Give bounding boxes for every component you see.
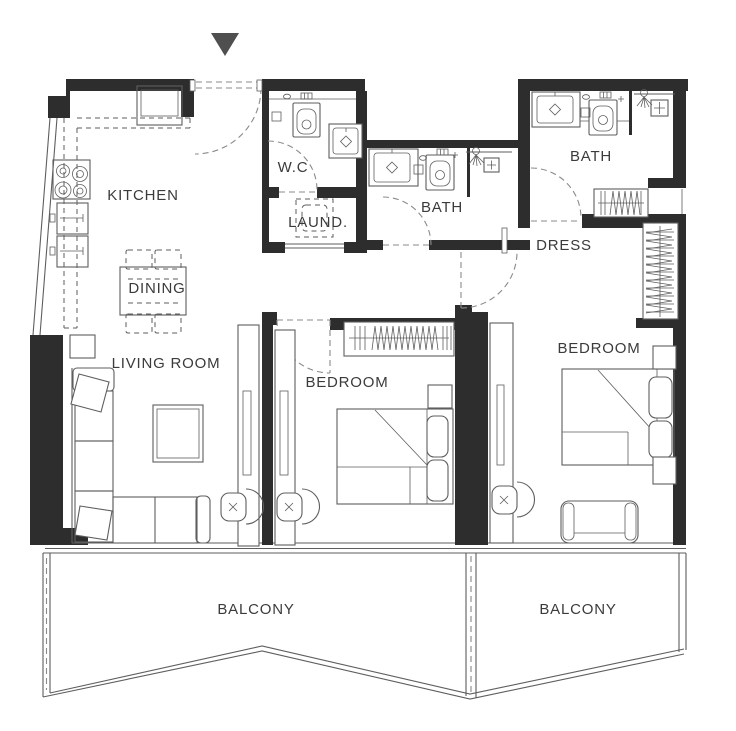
pillow-icon bbox=[649, 377, 672, 418]
bath1-fixtures bbox=[369, 148, 512, 191]
wall-accessory-icon bbox=[272, 112, 281, 121]
fridge-icon bbox=[137, 86, 182, 125]
room-label-living-room: LIVING ROOM bbox=[112, 355, 221, 372]
washbasin-icon bbox=[532, 92, 580, 127]
bed-icon bbox=[337, 409, 453, 504]
sofa-icon bbox=[71, 368, 210, 543]
pillow-icon bbox=[427, 460, 448, 501]
room-label-dining: DINING bbox=[128, 280, 185, 297]
room-labels: KITCHEN W.C LAUND. BATH BATH DRESS DININ… bbox=[107, 148, 640, 618]
room-label-bath-2: BATH bbox=[570, 148, 612, 165]
pillow-icon bbox=[649, 421, 672, 458]
window-wall bbox=[43, 543, 686, 553]
soap-dish-icon bbox=[583, 95, 590, 100]
desk-chair-icon bbox=[492, 482, 535, 517]
nightstand-icon bbox=[653, 346, 676, 369]
door-jamb bbox=[257, 80, 262, 91]
room-label-wc: W.C bbox=[278, 159, 309, 176]
soap-dish-icon bbox=[284, 94, 291, 99]
nightstand-icon bbox=[428, 385, 452, 408]
nightstand-icon bbox=[653, 457, 676, 484]
toilet-icon bbox=[293, 103, 320, 137]
door-jamb bbox=[502, 228, 507, 253]
toilet-icon bbox=[589, 100, 617, 135]
pillow-icon bbox=[427, 416, 448, 457]
shelf-icon bbox=[437, 149, 448, 155]
room-label-balcony-1: BALCONY bbox=[217, 601, 294, 618]
room-label-laundry: LAUND. bbox=[288, 214, 348, 231]
bed-icon bbox=[562, 369, 674, 465]
shelf-icon bbox=[600, 92, 611, 98]
laundry-sliding-door bbox=[285, 244, 344, 248]
dress-door-swing-arc bbox=[461, 252, 517, 308]
room-label-bath-1: BATH bbox=[421, 199, 463, 216]
desk-chair-icon bbox=[277, 489, 320, 524]
stove-icon bbox=[53, 160, 90, 199]
toilet-icon bbox=[426, 155, 454, 190]
pillow-icon bbox=[71, 374, 109, 412]
side-table-icon bbox=[70, 335, 95, 358]
pillow-icon bbox=[75, 506, 112, 540]
closet-hangers-icon bbox=[594, 189, 648, 217]
balcony-railing bbox=[43, 553, 686, 699]
door-jamb bbox=[190, 80, 195, 91]
shower-icon bbox=[634, 90, 675, 117]
bench-sofa-icon bbox=[561, 501, 638, 543]
wc-fixtures bbox=[269, 93, 362, 158]
washbasin-icon bbox=[329, 124, 362, 158]
floor-plan-drawing: KITCHEN W.C LAUND. BATH BATH DRESS DININ… bbox=[0, 0, 736, 731]
room-label-balcony-2: BALCONY bbox=[539, 601, 616, 618]
room-label-dress: DRESS bbox=[536, 237, 592, 254]
shower-icon bbox=[466, 148, 512, 173]
entrance-door-swing-arc bbox=[195, 88, 261, 154]
shelf-icon bbox=[301, 93, 312, 99]
closet-hangers-icon bbox=[344, 322, 454, 356]
bath2-fixtures bbox=[532, 90, 675, 136]
bath2-door-swing-arc bbox=[531, 168, 581, 221]
kitchen-sink-icon bbox=[50, 203, 88, 267]
balcony-divider bbox=[466, 553, 476, 698]
entrance-threshold bbox=[196, 82, 260, 88]
floor-plan: KITCHEN W.C LAUND. BATH BATH DRESS DININ… bbox=[0, 0, 736, 731]
washbasin-icon bbox=[369, 149, 418, 186]
room-label-bedroom-1: BEDROOM bbox=[305, 374, 388, 391]
coffee-table-icon bbox=[153, 405, 203, 462]
room-label-bedroom-2: BEDROOM bbox=[557, 340, 640, 357]
entrance-arrow-icon bbox=[211, 33, 239, 56]
closet-hangers-icon bbox=[643, 223, 678, 319]
room-label-kitchen: KITCHEN bbox=[107, 187, 178, 204]
